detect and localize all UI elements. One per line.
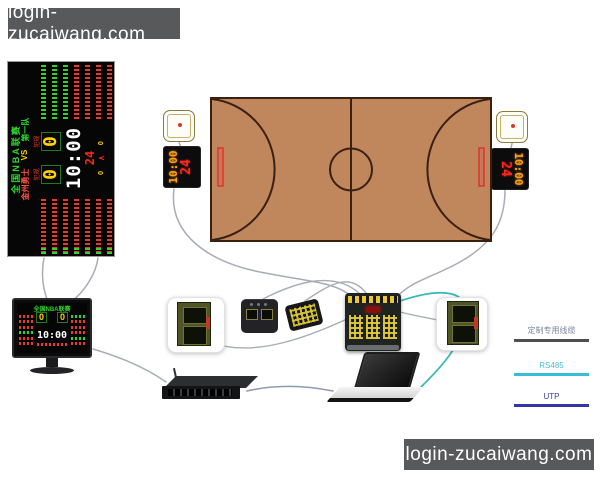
console-display — [366, 307, 380, 312]
display-unit-card-left — [167, 297, 225, 353]
monitor-clock: 10:00 — [37, 330, 67, 341]
backboard-left — [218, 148, 223, 186]
led-display-module — [177, 302, 211, 346]
console-keypad-left — [349, 315, 363, 339]
stat-row — [41, 63, 46, 119]
stat-row — [19, 342, 33, 345]
scoreboard-panel: 全国NBA联赛 金州勇士 VS 第一队 犯规 0 犯规 0 — [7, 61, 115, 257]
stat-row — [71, 331, 85, 334]
basketball-court — [210, 97, 492, 242]
stat-row — [19, 326, 33, 329]
shot-clock-time: 10:00 — [512, 149, 525, 189]
player-stats-home — [35, 197, 118, 253]
stat-row — [19, 337, 33, 340]
console-keypad-center — [366, 315, 380, 339]
stat-row — [63, 197, 68, 253]
stat-row — [71, 342, 85, 345]
laptop-keyboard — [326, 387, 424, 402]
monitor-stats-away — [71, 312, 85, 348]
backboard-right — [479, 148, 484, 186]
stat-row — [52, 197, 57, 253]
legend-item-utp: UTP — [514, 392, 589, 407]
stat-row — [74, 63, 79, 119]
wall-scoreboard: 全国NBA联赛 金州勇士 VS 第一队 犯规 0 犯规 0 — [8, 62, 116, 258]
legend-label: RS485 — [514, 361, 589, 370]
shot-clock-right: 10:00 24 — [492, 148, 530, 190]
shot-clock-face: 10:00 24 — [163, 146, 201, 188]
aux-caret: ∧ — [97, 155, 106, 161]
shot-clock-left: 10:00 24 — [164, 146, 202, 188]
console-keypad-right — [383, 315, 397, 339]
keypad-buttons — [289, 303, 319, 327]
receiver-led — [178, 123, 182, 127]
aux-right: 0 — [98, 141, 105, 145]
stat-row — [85, 197, 90, 253]
legend-line-utp — [514, 404, 589, 407]
monitor-base — [30, 367, 74, 374]
monitor-center: 0 0 10:00 — [35, 312, 69, 346]
cable-legend: 定制专用线缆 RS485 UTP — [514, 325, 589, 407]
controller-display — [261, 309, 273, 320]
shot-clock-value: 24 — [85, 151, 96, 165]
display-unit-card-right — [436, 297, 488, 351]
wireless-receiver-left — [163, 110, 195, 142]
aux-left: 0 — [98, 171, 105, 175]
stat-row — [41, 197, 46, 253]
diagram-stage: login-zucaiwang.com login-zucaiwang.com … — [0, 0, 600, 480]
cable-board-to-monitor-1 — [43, 258, 47, 299]
stat-row — [85, 63, 90, 119]
stat-row — [19, 331, 33, 334]
stat-row — [19, 320, 33, 323]
cable-monitor-to-switch — [93, 349, 166, 382]
monitor-led-strip — [37, 343, 67, 346]
laptop — [333, 352, 425, 406]
laptop-screen — [354, 352, 421, 390]
shot-clock-controller — [241, 299, 278, 333]
stat-row — [52, 63, 57, 119]
monitor-bezel: 全国NBA联赛 0 0 10:00 — [12, 298, 92, 358]
legend-item-rs485: RS485 — [514, 361, 589, 376]
console-button-row — [348, 296, 398, 303]
shot-clock-seconds: 24 — [180, 147, 193, 187]
network-switch — [162, 376, 252, 404]
main-control-console — [345, 293, 401, 351]
stat-row — [107, 63, 112, 119]
stat-row — [71, 315, 85, 318]
controller-leds — [250, 303, 253, 306]
game-clock: 10:00 — [63, 127, 85, 189]
red-connector — [206, 317, 210, 329]
shot-clock-seconds: 24 — [499, 149, 512, 189]
legend-line-custom — [514, 339, 589, 342]
monitor-stats-home — [19, 312, 33, 348]
legend-item-custom-cable: 定制专用线缆 — [514, 325, 589, 342]
led-window — [183, 326, 207, 345]
stat-row — [63, 63, 68, 119]
switch-front-face — [162, 386, 240, 399]
stat-row — [107, 197, 112, 253]
score-home: 0 — [41, 165, 61, 184]
controller-display — [246, 309, 258, 320]
cable-display-left-to-console — [213, 319, 347, 348]
aux-indicators: 0 ∧ 0 — [97, 141, 106, 175]
red-connector — [474, 317, 478, 329]
led-window — [183, 307, 207, 324]
monitor-screen: 全国NBA联赛 0 0 10:00 — [17, 303, 87, 353]
scoreboard-teams: 金州勇士 VS 第一队 — [20, 62, 31, 256]
legend-line-rs485 — [514, 373, 589, 376]
monitor-score-home: 0 — [36, 312, 47, 323]
stat-row — [96, 63, 101, 119]
stat-row — [71, 337, 85, 340]
legend-label: UTP — [514, 392, 589, 401]
scoreboard-center: 犯规 0 犯规 0 10:00 24 0 ∧ 0 — [32, 122, 106, 194]
led-window — [452, 325, 476, 343]
stat-row — [74, 197, 79, 253]
monitor-score-away: 0 — [57, 312, 68, 323]
stat-row — [71, 326, 85, 329]
stat-row — [19, 315, 33, 318]
switch-ports — [168, 389, 232, 396]
stat-row — [71, 320, 85, 323]
player-stats-away — [35, 63, 118, 119]
operator-monitor: 全国NBA联赛 0 0 10:00 — [12, 298, 96, 382]
vs-label: VS — [20, 150, 31, 161]
shot-clock-face: 10:00 24 — [491, 148, 529, 190]
wireless-receiver-right — [496, 111, 528, 143]
cable-switch-to-laptop — [247, 386, 333, 391]
console-base — [347, 345, 399, 350]
receiver-led — [511, 124, 515, 128]
stat-row — [96, 197, 101, 253]
led-display-module — [447, 301, 479, 345]
cable-board-to-monitor-2 — [72, 258, 98, 301]
team-home-label: 金州勇士 — [20, 168, 31, 200]
team-away-label: 第一队 — [20, 118, 31, 142]
cable-console-to-display-right — [400, 312, 438, 320]
score-away: 0 — [41, 132, 61, 151]
monitor-stand — [46, 358, 58, 367]
led-window — [452, 305, 476, 323]
legend-label: 定制专用线缆 — [514, 325, 589, 336]
